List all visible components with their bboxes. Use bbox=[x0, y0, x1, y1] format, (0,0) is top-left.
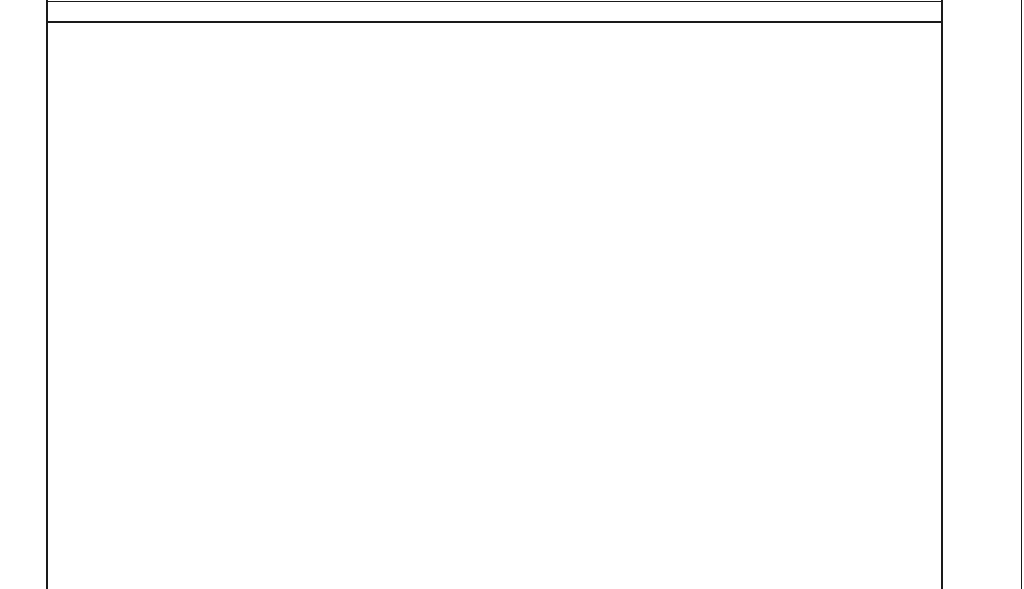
schematic-page bbox=[0, 0, 1024, 589]
title-rule-top bbox=[46, 1, 941, 2]
title-rule-bottom bbox=[46, 21, 941, 23]
wiring-diagram bbox=[0, 0, 1024, 589]
page-edge-line bbox=[1021, 0, 1022, 589]
page-border-left bbox=[46, 0, 48, 589]
page-border-right bbox=[941, 0, 943, 589]
